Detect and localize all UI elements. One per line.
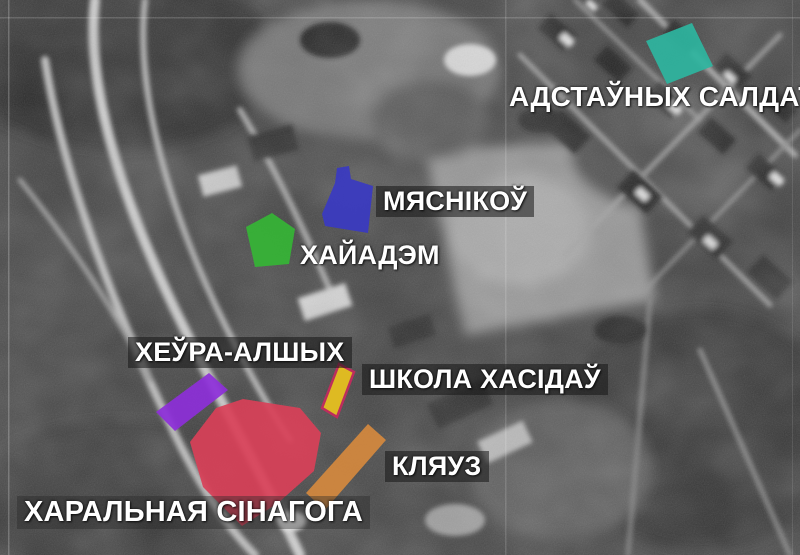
building-miasnikou: [322, 166, 373, 233]
label-charalnaja-sinahoha: ХАРАЛЬНАЯ СІНАГОГА: [17, 496, 370, 529]
label-chajadem: ХАЙАДЭМ: [300, 241, 440, 269]
building-chajadem: [246, 213, 295, 267]
building-shkola-chasidau: [322, 364, 354, 417]
label-shkola-chasidau: ШКОЛА ХАСІДАЎ: [362, 364, 608, 395]
annotated-aerial-map: АДСТАЎНЫХ САЛДАТ МЯСНІКОЎ ХАЙАДЭМ ХЕЎРА-…: [0, 0, 800, 555]
label-adstaunych-saldat: АДСТАЎНЫХ САЛДАТ: [509, 82, 800, 111]
building-adstaunych-saldat: [646, 23, 713, 84]
label-cheura-alshych: ХЕЎРА-АЛШЫХ: [128, 337, 352, 368]
label-klauz: КЛЯУЗ: [385, 451, 489, 482]
label-miasnikou: МЯСНІКОЎ: [376, 186, 534, 217]
